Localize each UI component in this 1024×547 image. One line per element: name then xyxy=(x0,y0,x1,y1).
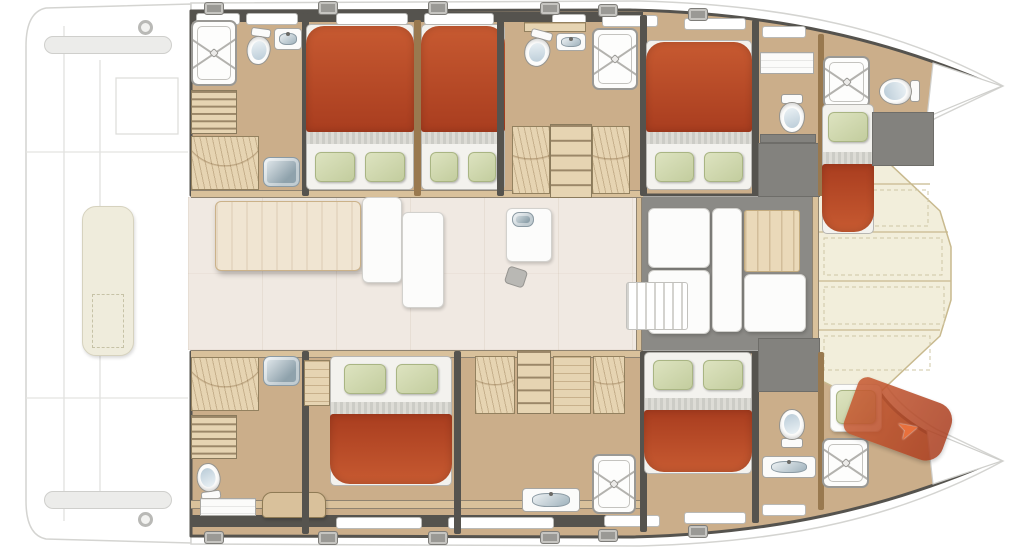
divider-cabin-ab xyxy=(414,20,421,196)
cockpit-hatch xyxy=(626,282,688,330)
toilet-fwd-stbd xyxy=(778,408,806,448)
basin-aft-port xyxy=(263,157,300,187)
hull-window-b1 xyxy=(336,517,422,529)
locker-fwd-port xyxy=(758,143,820,197)
shelf-fwd-port xyxy=(760,52,814,74)
toilet-mid-port xyxy=(520,27,557,71)
stern-pad-hatch xyxy=(92,294,124,348)
cockpit-panel xyxy=(744,210,800,272)
saloon-bench-1 xyxy=(362,197,402,283)
shelf-cabin-d xyxy=(304,360,330,406)
wardrobe-aft-stbd xyxy=(191,357,259,411)
wall-cabin-b xyxy=(497,13,504,196)
deck-hatch-t3 xyxy=(428,1,448,15)
stern-beam-top xyxy=(44,36,172,54)
sink-aft-port xyxy=(274,28,302,50)
saloon-bench-2 xyxy=(402,212,444,308)
deck-hatch-t1 xyxy=(204,2,224,15)
stairs-mid-stbd xyxy=(517,350,551,414)
hull-window-b2 xyxy=(448,517,554,529)
vanity-fwd-stbd xyxy=(762,456,816,478)
hull-window-t2 xyxy=(246,13,298,25)
wall-cabin-d xyxy=(454,351,461,534)
shower-aft-port xyxy=(191,20,237,86)
counter-aft-stbd xyxy=(200,498,256,516)
deck-hatch-b5 xyxy=(598,529,618,542)
cockpit-cushion-4 xyxy=(744,274,806,332)
cockpit-cushion-1 xyxy=(648,208,710,268)
deck-hatch-b6 xyxy=(688,525,708,538)
wardrobe-mid-port-r xyxy=(592,126,630,194)
toilet-fwd-port xyxy=(778,94,806,134)
deck-hatch-t2 xyxy=(318,1,338,15)
shower-mid-stbd xyxy=(592,454,636,514)
toilet-aft-port xyxy=(243,26,274,67)
stairs-mid-port xyxy=(550,124,592,198)
stern-beam-bottom xyxy=(44,491,172,509)
stairs-aft-stbd xyxy=(191,415,237,459)
deck-hatch-b3 xyxy=(428,531,448,545)
shower-bow-port xyxy=(823,56,870,108)
basin-aft-stbd xyxy=(263,356,300,386)
cleat-aft-port xyxy=(138,20,153,35)
wardrobe-mid-stbd-l xyxy=(475,356,515,414)
desk-aft-stbd xyxy=(262,492,326,518)
wall-fwd-stbd xyxy=(818,352,824,510)
deck-hatch-b4 xyxy=(540,531,560,544)
shower-mid-port xyxy=(592,28,638,90)
deck-hatch-t4 xyxy=(540,2,560,15)
cleat-aft-stbd xyxy=(138,512,153,527)
bed-cabin-a xyxy=(306,24,414,190)
wardrobe-aft-port xyxy=(191,136,259,190)
hull-window-b5 xyxy=(762,504,806,516)
hull-window-t8 xyxy=(762,26,806,38)
cockpit-cushion-3 xyxy=(712,208,742,332)
bed-bow-port xyxy=(822,104,874,234)
catamaran-floorplan: ➤ xyxy=(0,0,1024,547)
bed-cabin-b xyxy=(421,24,505,190)
bed-cabin-e xyxy=(644,352,752,474)
hull-window-b4 xyxy=(684,512,746,524)
hull-window-b3 xyxy=(604,515,660,527)
sink-mid-port xyxy=(556,33,586,51)
wardrobe-mid-port-l xyxy=(512,126,550,194)
fixtures-layer: ➤ xyxy=(0,0,1024,547)
saloon-table xyxy=(215,201,361,271)
toilet-bow-port xyxy=(878,76,920,106)
locker-fwd-stbd xyxy=(758,338,820,392)
shelf-dark-fwd-port xyxy=(760,134,816,143)
shower-bow-stbd xyxy=(822,438,869,488)
stairs-aft-port xyxy=(191,90,237,134)
deck-hatch-b2 xyxy=(318,531,338,545)
bed-cabin-c xyxy=(646,40,752,190)
deck-hatch-t6 xyxy=(688,8,708,21)
wardrobe-mid-stbd-r xyxy=(593,356,625,414)
vanity-mid-stbd xyxy=(522,488,580,512)
shelf-mid-stbd xyxy=(553,356,591,414)
deck-hatch-b1 xyxy=(204,531,224,544)
locker-bow-port xyxy=(872,112,934,166)
deck-hatch-t5 xyxy=(598,4,618,17)
toilet-aft-stbd xyxy=(193,460,224,501)
bed-cabin-d xyxy=(330,356,452,486)
galley-sink xyxy=(512,212,534,227)
